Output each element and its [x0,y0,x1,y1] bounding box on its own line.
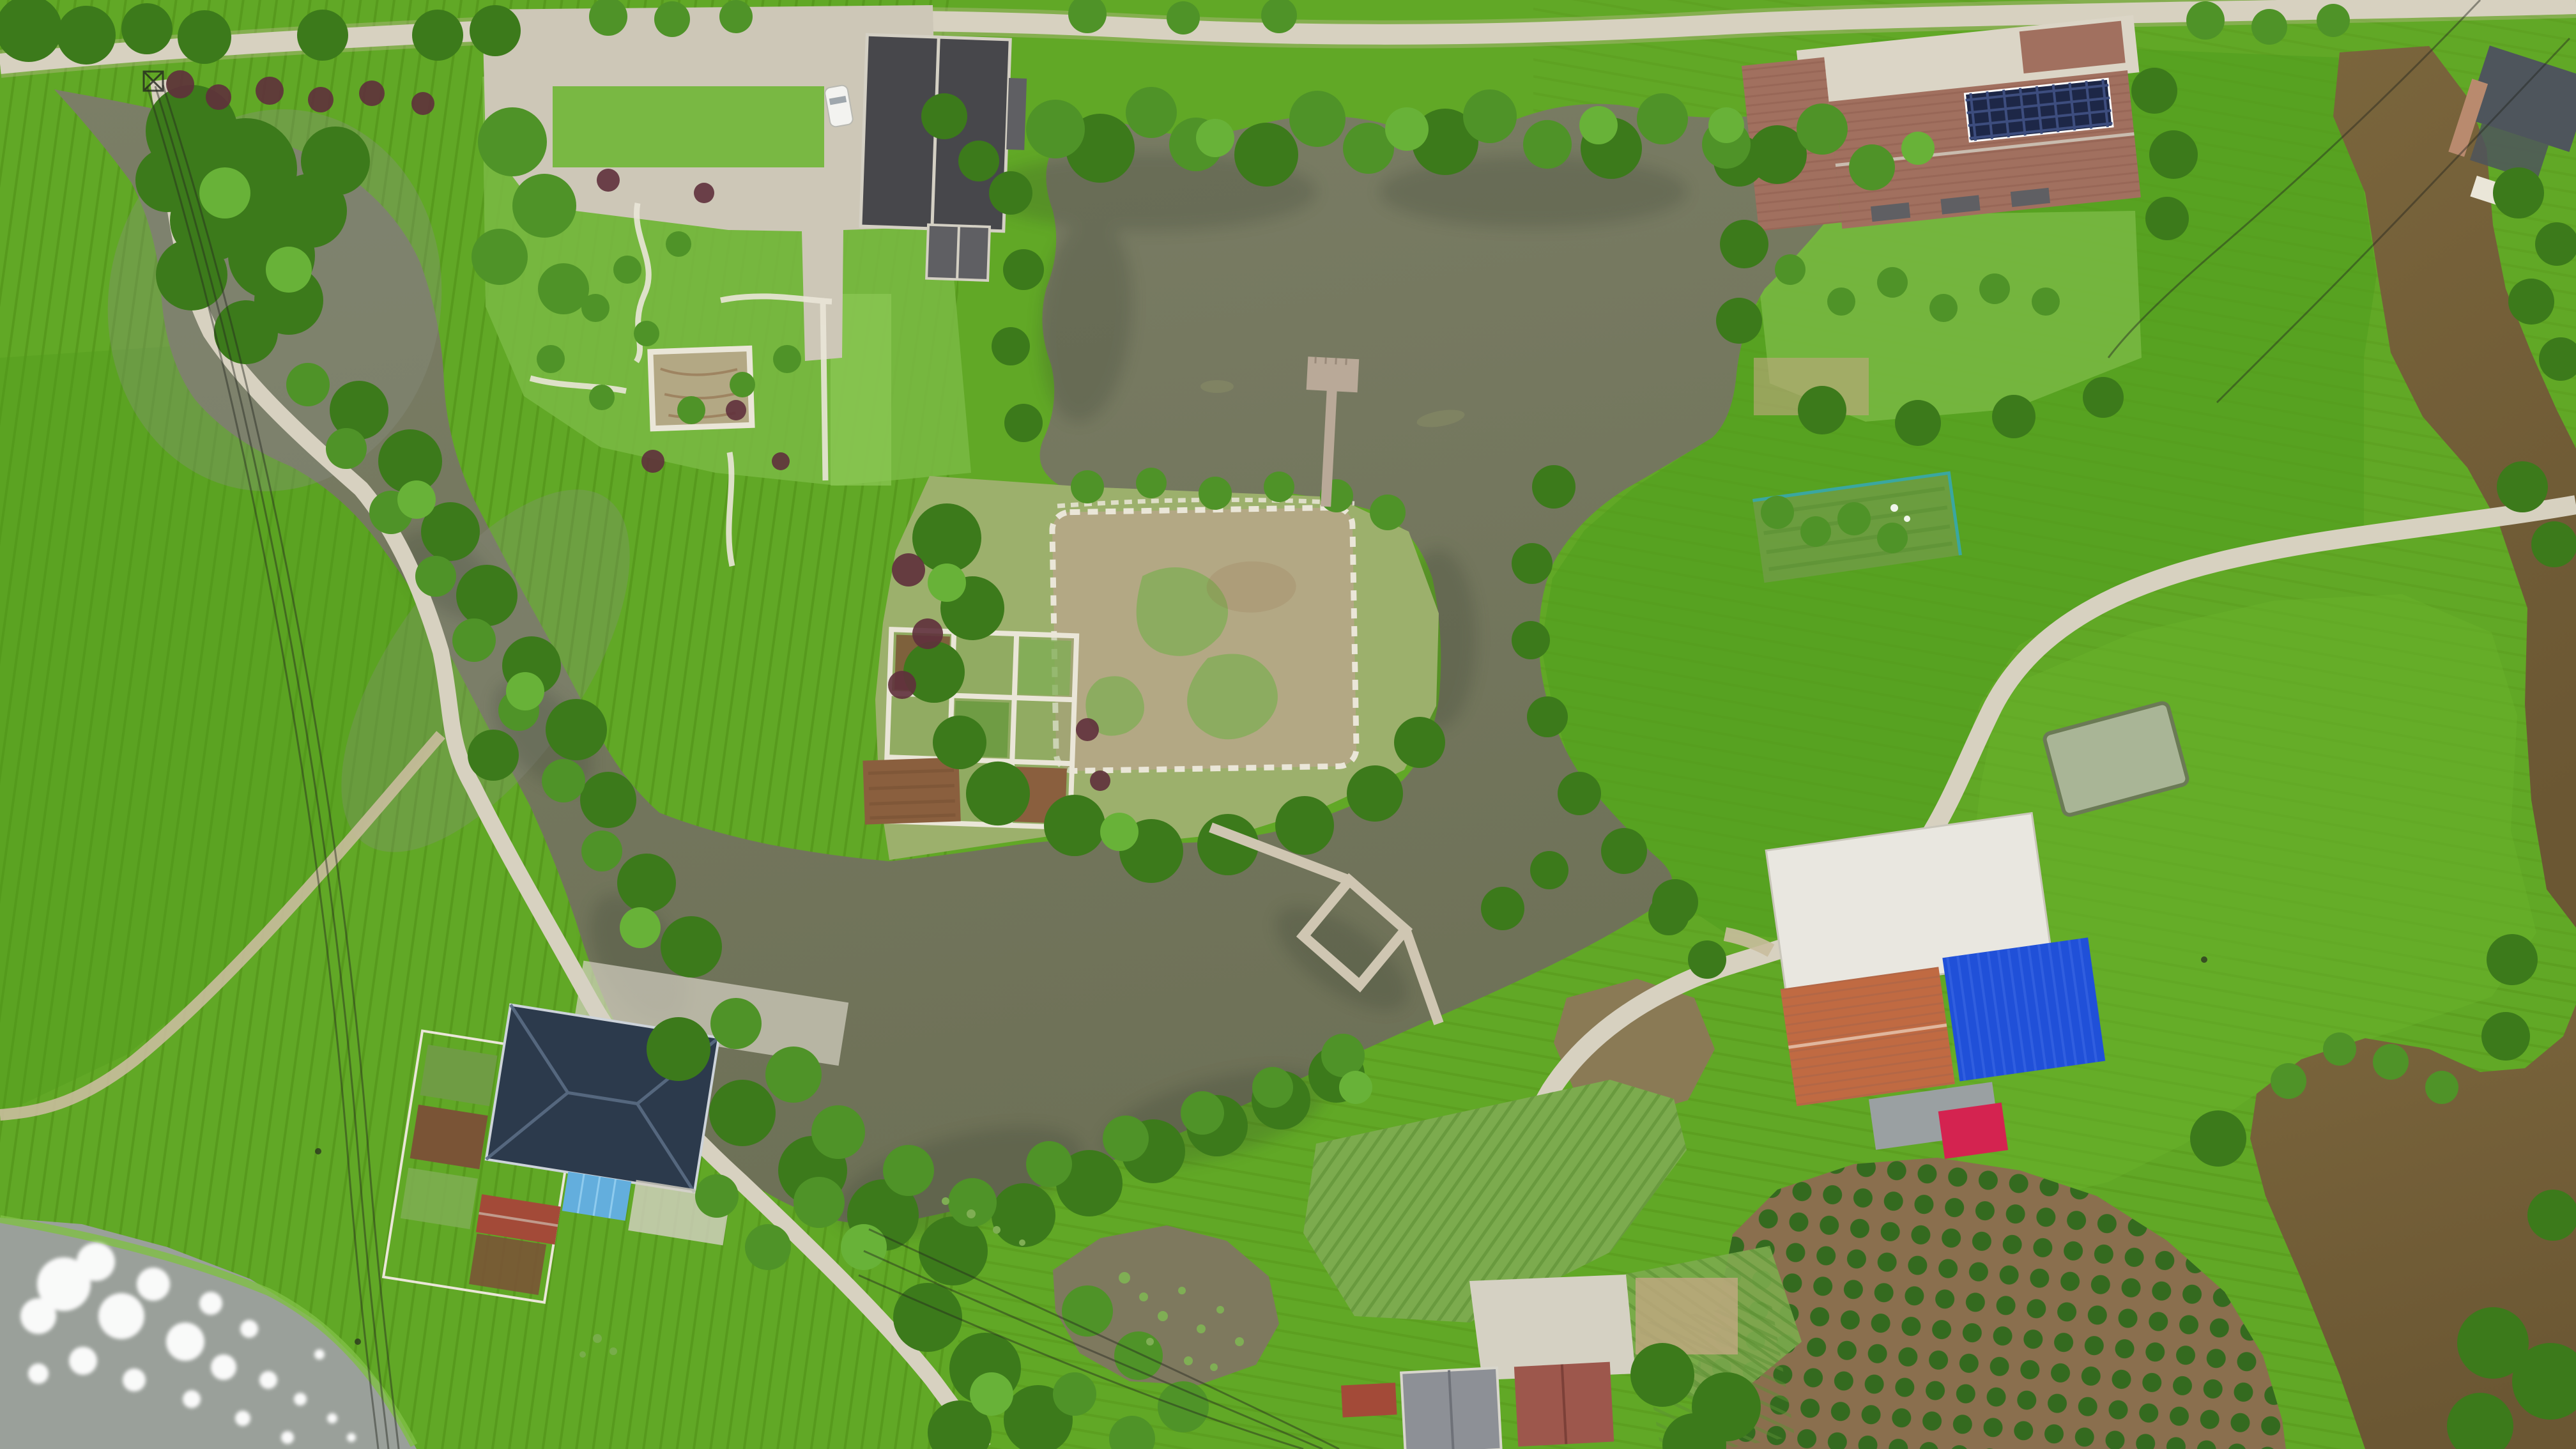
aerial-photo [0,0,2576,1449]
fenced-bed [420,1045,497,1106]
red-awning [1938,1103,2008,1159]
fenced-bed [410,1105,488,1169]
utility-pole [355,1338,361,1345]
fenced-bed [401,1168,478,1229]
estate-house-wing [1006,78,1027,150]
estate-lawn-patch [553,86,824,167]
utility-pole [2201,956,2207,963]
fenced-bed [469,1234,546,1295]
algae [1200,380,1234,393]
island-soil-plot [862,757,960,824]
garden-bed [1018,639,1071,696]
algae-dot [609,1347,617,1355]
village-concrete-pad [1469,1275,1636,1380]
white-sack [1904,516,1910,522]
t-dock-head [1307,356,1360,392]
dirt-patch-village [1636,1278,1738,1354]
village-small-red-roof [1341,1383,1397,1417]
algae-dot [579,1351,586,1358]
blue-roof-ribs [1942,937,2105,1081]
utility-pole [315,1148,321,1154]
algae-dot [593,1334,602,1343]
stone-path [823,300,825,480]
stone-path [729,452,732,566]
white-sack [1890,504,1898,512]
aerial-photo-stage [0,0,2576,1449]
